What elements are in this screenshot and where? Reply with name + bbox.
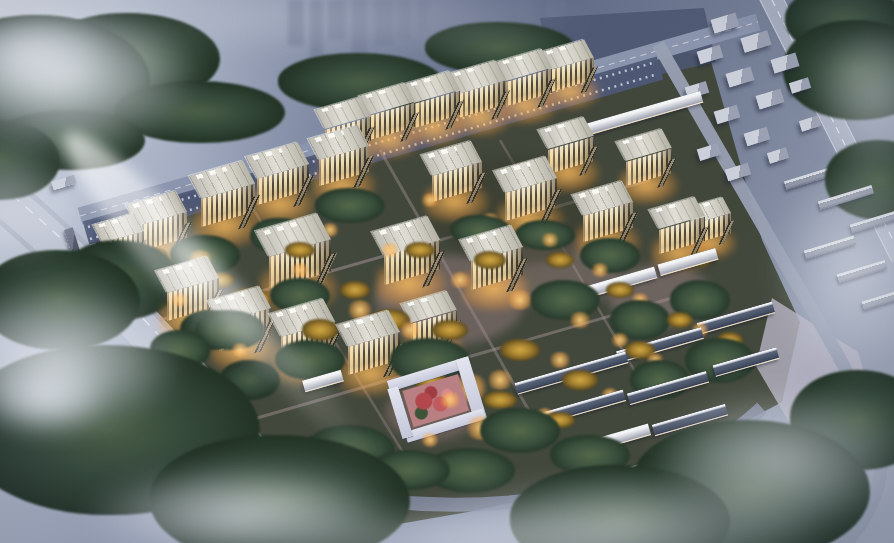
glow-light xyxy=(506,290,534,310)
residential-tower xyxy=(201,176,255,233)
glow-light xyxy=(380,243,400,257)
tree-cluster xyxy=(302,319,338,341)
tree-cluster xyxy=(474,251,506,269)
aerial-masterplan-render xyxy=(0,0,894,543)
tree-cluster xyxy=(546,252,574,268)
cloud xyxy=(650,385,894,535)
tree-cluster xyxy=(480,408,560,453)
tree-cluster xyxy=(500,339,540,361)
glow-light xyxy=(420,193,440,207)
residential-tower xyxy=(505,171,557,227)
tree-cluster xyxy=(285,242,315,258)
tree-cluster xyxy=(606,282,634,298)
residential-tower xyxy=(626,142,672,191)
residential-tower xyxy=(319,139,369,192)
tree-cluster xyxy=(405,242,435,258)
tree-cluster xyxy=(530,280,600,320)
glow-light xyxy=(486,370,514,390)
tree-cluster xyxy=(580,238,640,273)
glow-light xyxy=(290,263,310,277)
tree-cluster xyxy=(315,188,385,223)
tree-cluster xyxy=(562,370,598,390)
tree-cluster xyxy=(483,391,517,409)
glow-light xyxy=(420,433,440,447)
tree-cluster xyxy=(667,312,693,328)
glow-light xyxy=(590,263,610,277)
residential-tower xyxy=(257,157,309,211)
residential-tower xyxy=(384,232,440,292)
glow-light xyxy=(540,233,560,247)
tree-cluster xyxy=(340,281,370,299)
tree-cluster xyxy=(432,320,468,340)
